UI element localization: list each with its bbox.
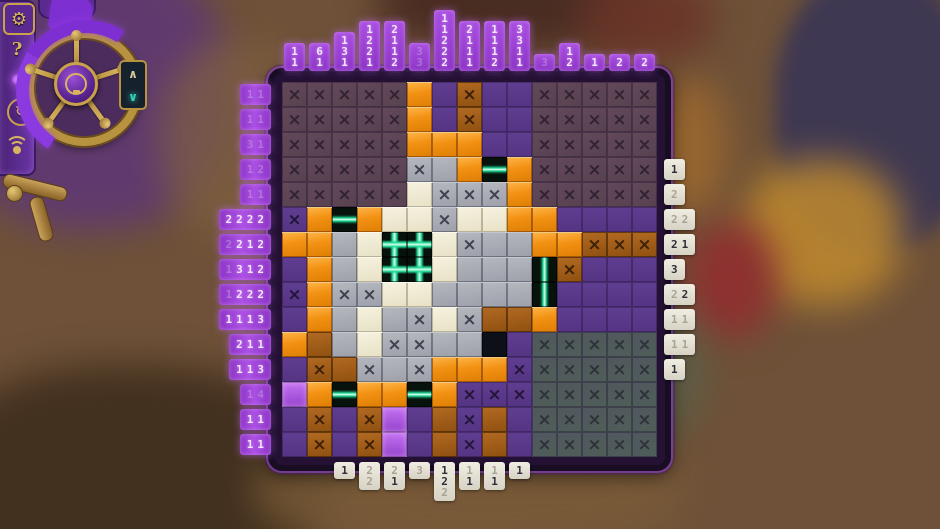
grid-cell-r13c6[interactable] xyxy=(407,382,432,407)
clue-top-col-12[interactable]: 12 xyxy=(559,43,580,71)
grid-cell-r2c1[interactable]: × xyxy=(282,107,307,132)
clue-number: 1 xyxy=(669,359,680,380)
grid-cell-r15c13[interactable]: × xyxy=(582,432,607,457)
grid-cell-r8c6[interactable] xyxy=(407,257,432,282)
clue-right-row-12[interactable]: 1 xyxy=(664,359,685,380)
grid-cell-r11c15[interactable]: × xyxy=(632,332,657,357)
grid-cell-r12c4[interactable]: × xyxy=(357,357,382,382)
grid-cell-r13c12[interactable]: × xyxy=(557,382,582,407)
grid-cell-r4c2[interactable]: × xyxy=(307,157,332,182)
clue-right-row-4[interactable]: 1 xyxy=(664,159,685,180)
grid-cell-r3c9[interactable] xyxy=(482,132,507,157)
grid-cell-r7c6[interactable] xyxy=(407,232,432,257)
grid-cell-r5c5[interactable]: × xyxy=(382,182,407,207)
grid-cell-r10c12[interactable] xyxy=(557,307,582,332)
grid-cell-r10c15[interactable] xyxy=(632,307,657,332)
grid-cell-r11c14[interactable]: × xyxy=(607,332,632,357)
grid-cell-r4c13[interactable]: × xyxy=(582,157,607,182)
clue-left-row-15[interactable]: 11 xyxy=(240,434,271,455)
clue-top-col-2[interactable]: 61 xyxy=(309,43,330,71)
grid-cell-r7c2[interactable] xyxy=(307,232,332,257)
grid-cell-r15c6[interactable] xyxy=(407,432,432,457)
grid-cell-r2c9[interactable] xyxy=(482,107,507,132)
clue-number: 1 xyxy=(245,259,256,280)
clue-number: 2 xyxy=(245,209,256,230)
grid-cell-r6c15[interactable] xyxy=(632,207,657,232)
grid-cell-r13c11[interactable]: × xyxy=(532,382,557,407)
grid-cell-r9c12[interactable] xyxy=(557,282,582,307)
clue-number: 3 xyxy=(534,57,555,68)
clue-bottom-col-6[interactable]: 3 xyxy=(409,462,430,479)
grid-cell-r6c7[interactable]: × xyxy=(432,207,457,232)
grid-cell-r10c11[interactable] xyxy=(532,307,557,332)
grid-cell-r11c12[interactable]: × xyxy=(557,332,582,357)
grid-cell-r10c14[interactable] xyxy=(607,307,632,332)
clue-left-row-4[interactable]: 12 xyxy=(240,159,271,180)
grid-cell-r2c12[interactable]: × xyxy=(557,107,582,132)
grid-cell-r9c8[interactable] xyxy=(457,282,482,307)
grid-cell-r11c2[interactable] xyxy=(307,332,332,357)
clue-left-row-8[interactable]: 1312 xyxy=(219,259,272,280)
clue-left-row-12[interactable]: 113 xyxy=(229,359,271,380)
question-mark-icon: ? xyxy=(12,39,23,60)
grid-cell-r9c10[interactable] xyxy=(507,282,532,307)
grid-cell-r6c3[interactable] xyxy=(332,207,357,232)
grid-cell-r4c7[interactable] xyxy=(432,157,457,182)
grid-cell-r15c1[interactable] xyxy=(282,432,307,457)
grid-cell-r6c1[interactable]: × xyxy=(282,207,307,232)
clue-number: 1 xyxy=(255,84,266,105)
clue-left-row-2[interactable]: 11 xyxy=(240,109,271,130)
grid-cell-r11c9[interactable] xyxy=(482,332,507,357)
clue-number: 1 xyxy=(255,184,266,205)
grid-cell-r1c2[interactable]: × xyxy=(307,82,332,107)
grid-cell-r3c12[interactable]: × xyxy=(557,132,582,157)
clue-bottom-col-3[interactable]: 1 xyxy=(334,462,355,479)
grid-cell-r15c10[interactable] xyxy=(507,432,532,457)
clue-number: 3 xyxy=(409,465,430,476)
grid-cell-r1c7[interactable] xyxy=(432,82,457,107)
grid-cell-r7c5[interactable] xyxy=(382,232,407,257)
grid-cell-r13c14[interactable]: × xyxy=(607,382,632,407)
grid-cell-r8c3[interactable] xyxy=(332,257,357,282)
grid-cell-r8c11[interactable] xyxy=(532,257,557,282)
chevron-up-icon: ∧ xyxy=(128,67,138,81)
clue-right-row-10[interactable]: 11 xyxy=(664,309,695,330)
clue-top-col-1[interactable]: 11 xyxy=(284,43,305,71)
grid-cell-r7c14[interactable]: × xyxy=(607,232,632,257)
clue-number: 1 xyxy=(359,57,380,68)
grid-cell-r1c5[interactable]: × xyxy=(382,82,407,107)
grid-cell-r14c13[interactable]: × xyxy=(582,407,607,432)
grid-cell-r4c11[interactable]: × xyxy=(532,157,557,182)
gear-icon: ⚙ xyxy=(11,9,27,30)
grid-cell-r5c9[interactable]: × xyxy=(482,182,507,207)
settings-gear-button[interactable]: ⚙ xyxy=(3,3,35,35)
grid-cell-r1c12[interactable]: × xyxy=(557,82,582,107)
grid-cell-r7c3[interactable] xyxy=(332,232,357,257)
grid-cell-r12c3[interactable] xyxy=(332,357,357,382)
grid-cell-r6c12[interactable] xyxy=(557,207,582,232)
grid-cell-r5c3[interactable]: × xyxy=(332,182,357,207)
clue-right-row-6[interactable]: 22 xyxy=(664,209,695,230)
grid-cell-r1c11[interactable]: × xyxy=(532,82,557,107)
clue-right-row-7[interactable]: 21 xyxy=(664,234,695,255)
grid-cell-r12c9[interactable] xyxy=(482,357,507,382)
grid-cell-r3c15[interactable]: × xyxy=(632,132,657,157)
grid-cell-r8c13[interactable] xyxy=(582,257,607,282)
clue-top-col-5[interactable]: 2112 xyxy=(384,21,405,71)
grid-cell-r5c1[interactable]: × xyxy=(282,182,307,207)
grid-cell-r11c7[interactable] xyxy=(432,332,457,357)
clue-left-row-14[interactable]: 11 xyxy=(240,409,271,430)
clue-number: 1 xyxy=(245,309,256,330)
grid-cell-r1c4[interactable]: × xyxy=(357,82,382,107)
clue-left-row-3[interactable]: 31 xyxy=(240,134,271,155)
grid-cell-r3c7[interactable] xyxy=(432,132,457,157)
grid-cell-r7c10[interactable] xyxy=(507,232,532,257)
clue-number: 2 xyxy=(434,57,455,68)
grid-cell-r7c8[interactable]: × xyxy=(457,232,482,257)
grid-cell-r11c11[interactable]: × xyxy=(532,332,557,357)
grid-cell-r3c14[interactable]: × xyxy=(607,132,632,157)
grid-cell-r8c10[interactable] xyxy=(507,257,532,282)
clue-right-row-8[interactable]: 3 xyxy=(664,259,685,280)
grid-cell-r8c5[interactable] xyxy=(382,257,407,282)
grid-cell-r2c4[interactable]: × xyxy=(357,107,382,132)
grid-cell-r4c3[interactable]: × xyxy=(332,157,357,182)
grid-cell-r9c1[interactable]: × xyxy=(282,282,307,307)
grid-cell-r9c11[interactable] xyxy=(532,282,557,307)
grid-cell-r13c8[interactable]: × xyxy=(457,382,482,407)
clue-right-row-11[interactable]: 11 xyxy=(664,334,695,355)
grid-cell-r4c9[interactable] xyxy=(482,157,507,182)
clue-left-row-6[interactable]: 2222 xyxy=(219,209,272,230)
grid-cell-r9c6[interactable] xyxy=(407,282,432,307)
grid-cell-r12c1[interactable] xyxy=(282,357,307,382)
clue-number: 1 xyxy=(245,234,256,255)
grid-cell-r7c11[interactable] xyxy=(532,232,557,257)
grid-cell-r12c10[interactable]: × xyxy=(507,357,532,382)
grid-cell-r3c2[interactable]: × xyxy=(307,132,332,157)
grid-cell-r3c6[interactable] xyxy=(407,132,432,157)
grid-cell-r15c7[interactable] xyxy=(432,432,457,457)
grid-cell-r9c9[interactable] xyxy=(482,282,507,307)
grid-cell-r1c3[interactable]: × xyxy=(332,82,357,107)
grid-cell-r8c7[interactable] xyxy=(432,257,457,282)
grid-cell-r1c13[interactable]: × xyxy=(582,82,607,107)
grid-cell-r14c5[interactable] xyxy=(382,407,407,432)
clue-bottom-col-7[interactable]: 122 xyxy=(434,462,455,501)
grid-cell-r11c8[interactable] xyxy=(457,332,482,357)
grid-cell-r1c10[interactable] xyxy=(507,82,532,107)
grid-cell-r11c5[interactable]: × xyxy=(382,332,407,357)
clue-bottom-col-5[interactable]: 21 xyxy=(384,462,405,490)
grid-cell-r4c5[interactable]: × xyxy=(382,157,407,182)
grid-cell-r10c10[interactable] xyxy=(507,307,532,332)
grid-cell-r4c10[interactable] xyxy=(507,157,532,182)
grid-cell-r1c9[interactable] xyxy=(482,82,507,107)
clue-left-row-11[interactable]: 211 xyxy=(229,334,271,355)
grid-cell-r12c11[interactable]: × xyxy=(532,357,557,382)
grid-cell-r8c15[interactable] xyxy=(632,257,657,282)
clue-top-col-3[interactable]: 131 xyxy=(334,32,355,71)
grid-cell-r2c15[interactable]: × xyxy=(632,107,657,132)
clue-bottom-col-4[interactable]: 22 xyxy=(359,462,380,490)
grid-cell-r13c3[interactable] xyxy=(332,382,357,407)
grid-cell-r9c2[interactable] xyxy=(307,282,332,307)
grid-cell-r12c12[interactable]: × xyxy=(557,357,582,382)
grid-cell-r9c3[interactable]: × xyxy=(332,282,357,307)
grid-cell-r7c15[interactable]: × xyxy=(632,232,657,257)
grid-cell-r1c14[interactable]: × xyxy=(607,82,632,107)
grid-cell-r15c9[interactable] xyxy=(482,432,507,457)
grid-cell-r5c14[interactable]: × xyxy=(607,182,632,207)
grid-cell-r3c10[interactable] xyxy=(507,132,532,157)
grid-cell-r14c14[interactable]: × xyxy=(607,407,632,432)
grid-cell-r13c13[interactable]: × xyxy=(582,382,607,407)
grid-cell-r6c6[interactable] xyxy=(407,207,432,232)
grid-cell-r10c13[interactable] xyxy=(582,307,607,332)
grid-cell-r7c7[interactable] xyxy=(432,232,457,257)
grid-cell-r13c2[interactable] xyxy=(307,382,332,407)
clue-top-col-4[interactable]: 1221 xyxy=(359,21,380,71)
grid-cell-r4c12[interactable]: × xyxy=(557,157,582,182)
grid-cell-r2c3[interactable]: × xyxy=(332,107,357,132)
grid-cell-r11c10[interactable] xyxy=(507,332,532,357)
grid-cell-r2c10[interactable] xyxy=(507,107,532,132)
grid-cell-r14c10[interactable] xyxy=(507,407,532,432)
clue-bottom-col-10[interactable]: 1 xyxy=(509,462,530,479)
grid-cell-r5c12[interactable]: × xyxy=(557,182,582,207)
grid-cell-r6c8[interactable] xyxy=(457,207,482,232)
clue-left-row-9[interactable]: 1222 xyxy=(219,284,272,305)
grid-cell-r5c4[interactable]: × xyxy=(357,182,382,207)
grid-cell-r14c9[interactable] xyxy=(482,407,507,432)
grid-cell-r9c13[interactable] xyxy=(582,282,607,307)
grid-cell-r5c13[interactable]: × xyxy=(582,182,607,207)
grid-cell-r6c14[interactable] xyxy=(607,207,632,232)
grid-cell-r2c14[interactable]: × xyxy=(607,107,632,132)
grid-cell-r6c2[interactable] xyxy=(307,207,332,232)
grid-cell-r7c4[interactable] xyxy=(357,232,382,257)
grid-cell-r6c9[interactable] xyxy=(482,207,507,232)
clue-right-row-9[interactable]: 22 xyxy=(664,284,695,305)
clue-top-col-9[interactable]: 1112 xyxy=(484,21,505,71)
grid-cell-r8c14[interactable] xyxy=(607,257,632,282)
grid-cell-r14c8[interactable]: × xyxy=(457,407,482,432)
grid-cell-r11c1[interactable] xyxy=(282,332,307,357)
clue-number: 2 xyxy=(234,209,245,230)
clue-top-col-7[interactable]: 11222 xyxy=(434,10,455,71)
grid-cell-r10c1[interactable] xyxy=(282,307,307,332)
grid-cell-r15c15[interactable]: × xyxy=(632,432,657,457)
clue-right-row-5[interactable]: 2 xyxy=(664,184,685,205)
grid-cell-r15c4[interactable]: × xyxy=(357,432,382,457)
grid-cell-r4c14[interactable]: × xyxy=(607,157,632,182)
grid-cell-r5c6[interactable] xyxy=(407,182,432,207)
grid-cell-r10c9[interactable] xyxy=(482,307,507,332)
clue-number: 2 xyxy=(224,234,235,255)
grid-cell-r15c3[interactable] xyxy=(332,432,357,457)
grid-cell-r11c13[interactable]: × xyxy=(582,332,607,357)
grid-cell-r15c2[interactable]: × xyxy=(307,432,332,457)
grid-cell-r10c5[interactable] xyxy=(382,307,407,332)
grid-cell-r14c15[interactable]: × xyxy=(632,407,657,432)
clue-number: 1 xyxy=(484,476,505,487)
grid-cell-r14c6[interactable] xyxy=(407,407,432,432)
grid-cell-r8c12[interactable]: × xyxy=(557,257,582,282)
clue-number: 2 xyxy=(245,284,256,305)
grid-cell-r7c13[interactable]: × xyxy=(582,232,607,257)
grid-cell-r14c3[interactable] xyxy=(332,407,357,432)
grid-cell-r5c8[interactable]: × xyxy=(457,182,482,207)
grid-cell-r14c1[interactable] xyxy=(282,407,307,432)
grid-cell-r7c9[interactable] xyxy=(482,232,507,257)
clue-left-row-13[interactable]: 14 xyxy=(240,384,271,405)
grid-cell-r3c11[interactable]: × xyxy=(532,132,557,157)
grid-cell-r9c5[interactable] xyxy=(382,282,407,307)
grid-cell-r1c8[interactable]: × xyxy=(457,82,482,107)
grid-cell-r12c13[interactable]: × xyxy=(582,357,607,382)
grid-cell-r9c15[interactable] xyxy=(632,282,657,307)
grid-cell-r8c1[interactable] xyxy=(282,257,307,282)
grid-cell-r2c5[interactable]: × xyxy=(382,107,407,132)
grid-cell-r15c12[interactable]: × xyxy=(557,432,582,457)
grid-cell-r8c9[interactable] xyxy=(482,257,507,282)
grid-cell-r15c5[interactable] xyxy=(382,432,407,457)
grid-cell-r5c10[interactable] xyxy=(507,182,532,207)
clue-left-row-7[interactable]: 2212 xyxy=(219,234,272,255)
grid-cell-r5c15[interactable]: × xyxy=(632,182,657,207)
grid-cell-r2c6[interactable] xyxy=(407,107,432,132)
clue-number: 2 xyxy=(669,209,680,230)
grid-cell-r7c12[interactable] xyxy=(557,232,582,257)
grid-cell-r13c10[interactable]: × xyxy=(507,382,532,407)
grid-cell-r10c4[interactable] xyxy=(357,307,382,332)
grid-cell-r13c4[interactable] xyxy=(357,382,382,407)
grid-cell-r13c9[interactable]: × xyxy=(482,382,507,407)
grid-cell-r4c1[interactable]: × xyxy=(282,157,307,182)
clue-number: 1 xyxy=(334,57,355,68)
clue-left-row-10[interactable]: 1113 xyxy=(219,309,272,330)
grid-cell-r5c11[interactable]: × xyxy=(532,182,557,207)
clue-number: 2 xyxy=(680,209,691,230)
clue-bottom-col-9[interactable]: 11 xyxy=(484,462,505,490)
grid-cell-r14c11[interactable]: × xyxy=(532,407,557,432)
grid-cell-r12c7[interactable] xyxy=(432,357,457,382)
grid-cell-r10c7[interactable] xyxy=(432,307,457,332)
grid-cell-r14c2[interactable]: × xyxy=(307,407,332,432)
clue-number: 1 xyxy=(245,159,256,180)
grid-cell-r3c13[interactable]: × xyxy=(582,132,607,157)
grid-cell-r2c7[interactable] xyxy=(432,107,457,132)
grid-cell-r14c12[interactable]: × xyxy=(557,407,582,432)
column-clues-top: 1161131122121123311222211111123311312122 xyxy=(282,4,657,71)
grid-cell-r8c2[interactable] xyxy=(307,257,332,282)
clue-left-row-1[interactable]: 11 xyxy=(240,84,271,105)
grid-cell-r11c3[interactable] xyxy=(332,332,357,357)
clue-left-row-5[interactable]: 11 xyxy=(240,184,271,205)
grid-cell-r1c1[interactable]: × xyxy=(282,82,307,107)
grid-cell-r4c15[interactable]: × xyxy=(632,157,657,182)
clue-top-col-13[interactable]: 1 xyxy=(584,54,605,71)
clue-top-col-14[interactable]: 2 xyxy=(609,54,630,71)
grid-cell-r6c5[interactable] xyxy=(382,207,407,232)
grid-cell-r4c6[interactable]: × xyxy=(407,157,432,182)
grid-cell-r6c11[interactable] xyxy=(532,207,557,232)
grid-cell-r2c11[interactable]: × xyxy=(532,107,557,132)
clue-top-col-15[interactable]: 2 xyxy=(634,54,655,71)
clue-top-col-8[interactable]: 2111 xyxy=(459,21,480,71)
clue-number: 1 xyxy=(255,334,266,355)
grid-cell-r9c14[interactable] xyxy=(607,282,632,307)
grid-cell-r15c11[interactable]: × xyxy=(532,432,557,457)
grid-cell-r13c1[interactable] xyxy=(282,382,307,407)
grid-cell-r14c4[interactable]: × xyxy=(357,407,382,432)
grid-cell-r15c14[interactable]: × xyxy=(607,432,632,457)
grid-cell-r15c8[interactable]: × xyxy=(457,432,482,457)
grid-cell-r13c5[interactable] xyxy=(382,382,407,407)
clue-top-col-10[interactable]: 3311 xyxy=(509,21,530,71)
grid-cell-r1c15[interactable]: × xyxy=(632,82,657,107)
grid-cell-r12c2[interactable]: × xyxy=(307,357,332,382)
grid-cell-r12c15[interactable]: × xyxy=(632,357,657,382)
grid-cell-r13c15[interactable]: × xyxy=(632,382,657,407)
clue-number: 2 xyxy=(359,476,380,487)
grid-cell-r10c6[interactable]: × xyxy=(407,307,432,332)
grid-cell-r13c7[interactable] xyxy=(432,382,457,407)
grid-cell-r2c13[interactable]: × xyxy=(582,107,607,132)
grid-cell-r5c7[interactable]: × xyxy=(432,182,457,207)
clue-top-col-11[interactable]: 3 xyxy=(534,54,555,71)
grid-cell-r6c10[interactable] xyxy=(507,207,532,232)
grid-cell-r1c6[interactable] xyxy=(407,82,432,107)
grid-cell-r12c8[interactable] xyxy=(457,357,482,382)
grid-cell-r12c14[interactable]: × xyxy=(607,357,632,382)
grid-cell-r11c6[interactable]: × xyxy=(407,332,432,357)
clue-bottom-col-8[interactable]: 11 xyxy=(459,462,480,490)
grid-cell-r3c5[interactable]: × xyxy=(382,132,407,157)
grid-cell-r6c4[interactable] xyxy=(357,207,382,232)
grid-cell-r4c8[interactable] xyxy=(457,157,482,182)
grid-cell-r12c5[interactable] xyxy=(382,357,407,382)
grid-cell-r3c8[interactable] xyxy=(457,132,482,157)
grid-cell-r2c2[interactable]: × xyxy=(307,107,332,132)
grid-cell-r10c8[interactable]: × xyxy=(457,307,482,332)
grid-cell-r4c4[interactable]: × xyxy=(357,157,382,182)
grid-cell-r2c8[interactable]: × xyxy=(457,107,482,132)
clue-top-col-6[interactable]: 33 xyxy=(409,43,430,71)
grid-cell-r9c7[interactable] xyxy=(432,282,457,307)
puzzle-grid: ××××××××××××××××××××××××××××××××××××××××… xyxy=(282,82,657,457)
grid-cell-r7c1[interactable] xyxy=(282,232,307,257)
grid-cell-r3c1[interactable]: × xyxy=(282,132,307,157)
grid-cell-r6c13[interactable] xyxy=(582,207,607,232)
grid-cell-r14c7[interactable] xyxy=(432,407,457,432)
grid-cell-r8c8[interactable] xyxy=(457,257,482,282)
grid-cell-r10c2[interactable] xyxy=(307,307,332,332)
grid-cell-r11c4[interactable] xyxy=(357,332,382,357)
grid-cell-r5c2[interactable]: × xyxy=(307,182,332,207)
grid-cell-r8c4[interactable] xyxy=(357,257,382,282)
clue-number: 2 xyxy=(609,57,630,68)
grid-cell-r9c4[interactable]: × xyxy=(357,282,382,307)
grid-cell-r3c4[interactable]: × xyxy=(357,132,382,157)
grid-cell-r10c3[interactable] xyxy=(332,307,357,332)
grid-cell-r3c3[interactable]: × xyxy=(332,132,357,157)
grid-cell-r12c6[interactable]: × xyxy=(407,357,432,382)
